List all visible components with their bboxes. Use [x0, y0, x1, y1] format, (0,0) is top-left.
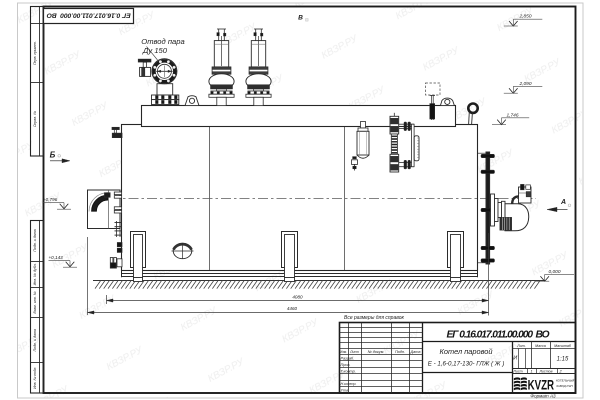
svg-text:0,000: 0,000 — [549, 269, 561, 275]
svg-text:Утв.: Утв. — [341, 389, 350, 393]
svg-text:Масса: Масса — [535, 344, 546, 348]
svg-text:1,746: 1,746 — [507, 112, 519, 118]
svg-text:Формат А3: Формат А3 — [530, 394, 556, 399]
svg-text:Все размеры для справок: Все размеры для справок — [344, 315, 405, 321]
svg-text:Ду 150: Ду 150 — [142, 46, 168, 55]
svg-text:2,850: 2,850 — [519, 14, 532, 20]
svg-text:KVZR: KVZR — [528, 377, 555, 393]
svg-text:Взам. инв. №: Взам. инв. № — [33, 291, 37, 313]
svg-text:+0,143: +0,143 — [49, 255, 64, 260]
svg-text:Отвод пара: Отвод пара — [141, 37, 184, 46]
svg-text:Подп. и дата: Подп. и дата — [33, 229, 37, 252]
svg-text:1: 1 — [530, 370, 532, 374]
svg-text:Котел паровой: Котел паровой — [439, 347, 492, 356]
svg-text:ЕГ 0.16.017.011.00.000 ВО: ЕГ 0.16.017.011.00.000 ВО — [46, 11, 131, 18]
svg-text:1:15: 1:15 — [557, 357, 569, 363]
svg-text:Подп.: Подп. — [395, 350, 405, 354]
svg-text:Листов: Листов — [538, 370, 552, 374]
svg-text:Изм.: Изм. — [340, 350, 347, 354]
svg-text:Перв. примен.: Перв. примен. — [33, 41, 37, 65]
svg-text:КОТЕЛЬНЫЙ: КОТЕЛЬНЫЙ — [556, 379, 575, 383]
svg-text:4460: 4460 — [287, 306, 298, 311]
svg-text:Инв. № подл.: Инв. № подл. — [33, 367, 37, 389]
svg-text:И: И — [513, 356, 517, 362]
svg-text:Разраб.: Разраб. — [341, 357, 355, 361]
svg-text:Б: Б — [50, 151, 56, 160]
svg-text:А: А — [560, 199, 566, 206]
svg-text:Лист: Лист — [512, 370, 522, 374]
svg-text:№ докум.: № докум. — [368, 350, 385, 354]
svg-text:Т.контр.: Т.контр. — [341, 369, 356, 373]
svg-text:Инв. № дубл.: Инв. № дубл. — [33, 263, 37, 285]
svg-text:Справ. №: Справ. № — [33, 111, 37, 127]
svg-text:4080: 4080 — [292, 294, 303, 299]
svg-text:2,090: 2,090 — [519, 81, 532, 87]
svg-text:Е - 1,6-0,17-130- ГЛЖ ( Ж ): Е - 1,6-0,17-130- ГЛЖ ( Ж ) — [428, 361, 505, 368]
svg-text:Масштаб: Масштаб — [554, 344, 572, 348]
svg-text:ЕГ 0.16.017.011.00.000 ВО: ЕГ 0.16.017.011.00.000 ВО — [447, 330, 550, 341]
svg-text:Пров.: Пров. — [341, 363, 351, 367]
svg-text:+0,796: +0,796 — [43, 197, 58, 202]
svg-text:В: В — [298, 15, 303, 22]
svg-text:Дата: Дата — [409, 350, 420, 354]
svg-text:Н.контр.: Н.контр. — [341, 382, 357, 386]
svg-text:Лист: Лист — [349, 350, 359, 354]
svg-text:ЗАВОД РЭП: ЗАВОД РЭП — [556, 384, 573, 388]
svg-text:Лит.: Лит. — [516, 344, 525, 348]
svg-text:Подп. и дата: Подп. и дата — [33, 329, 37, 352]
